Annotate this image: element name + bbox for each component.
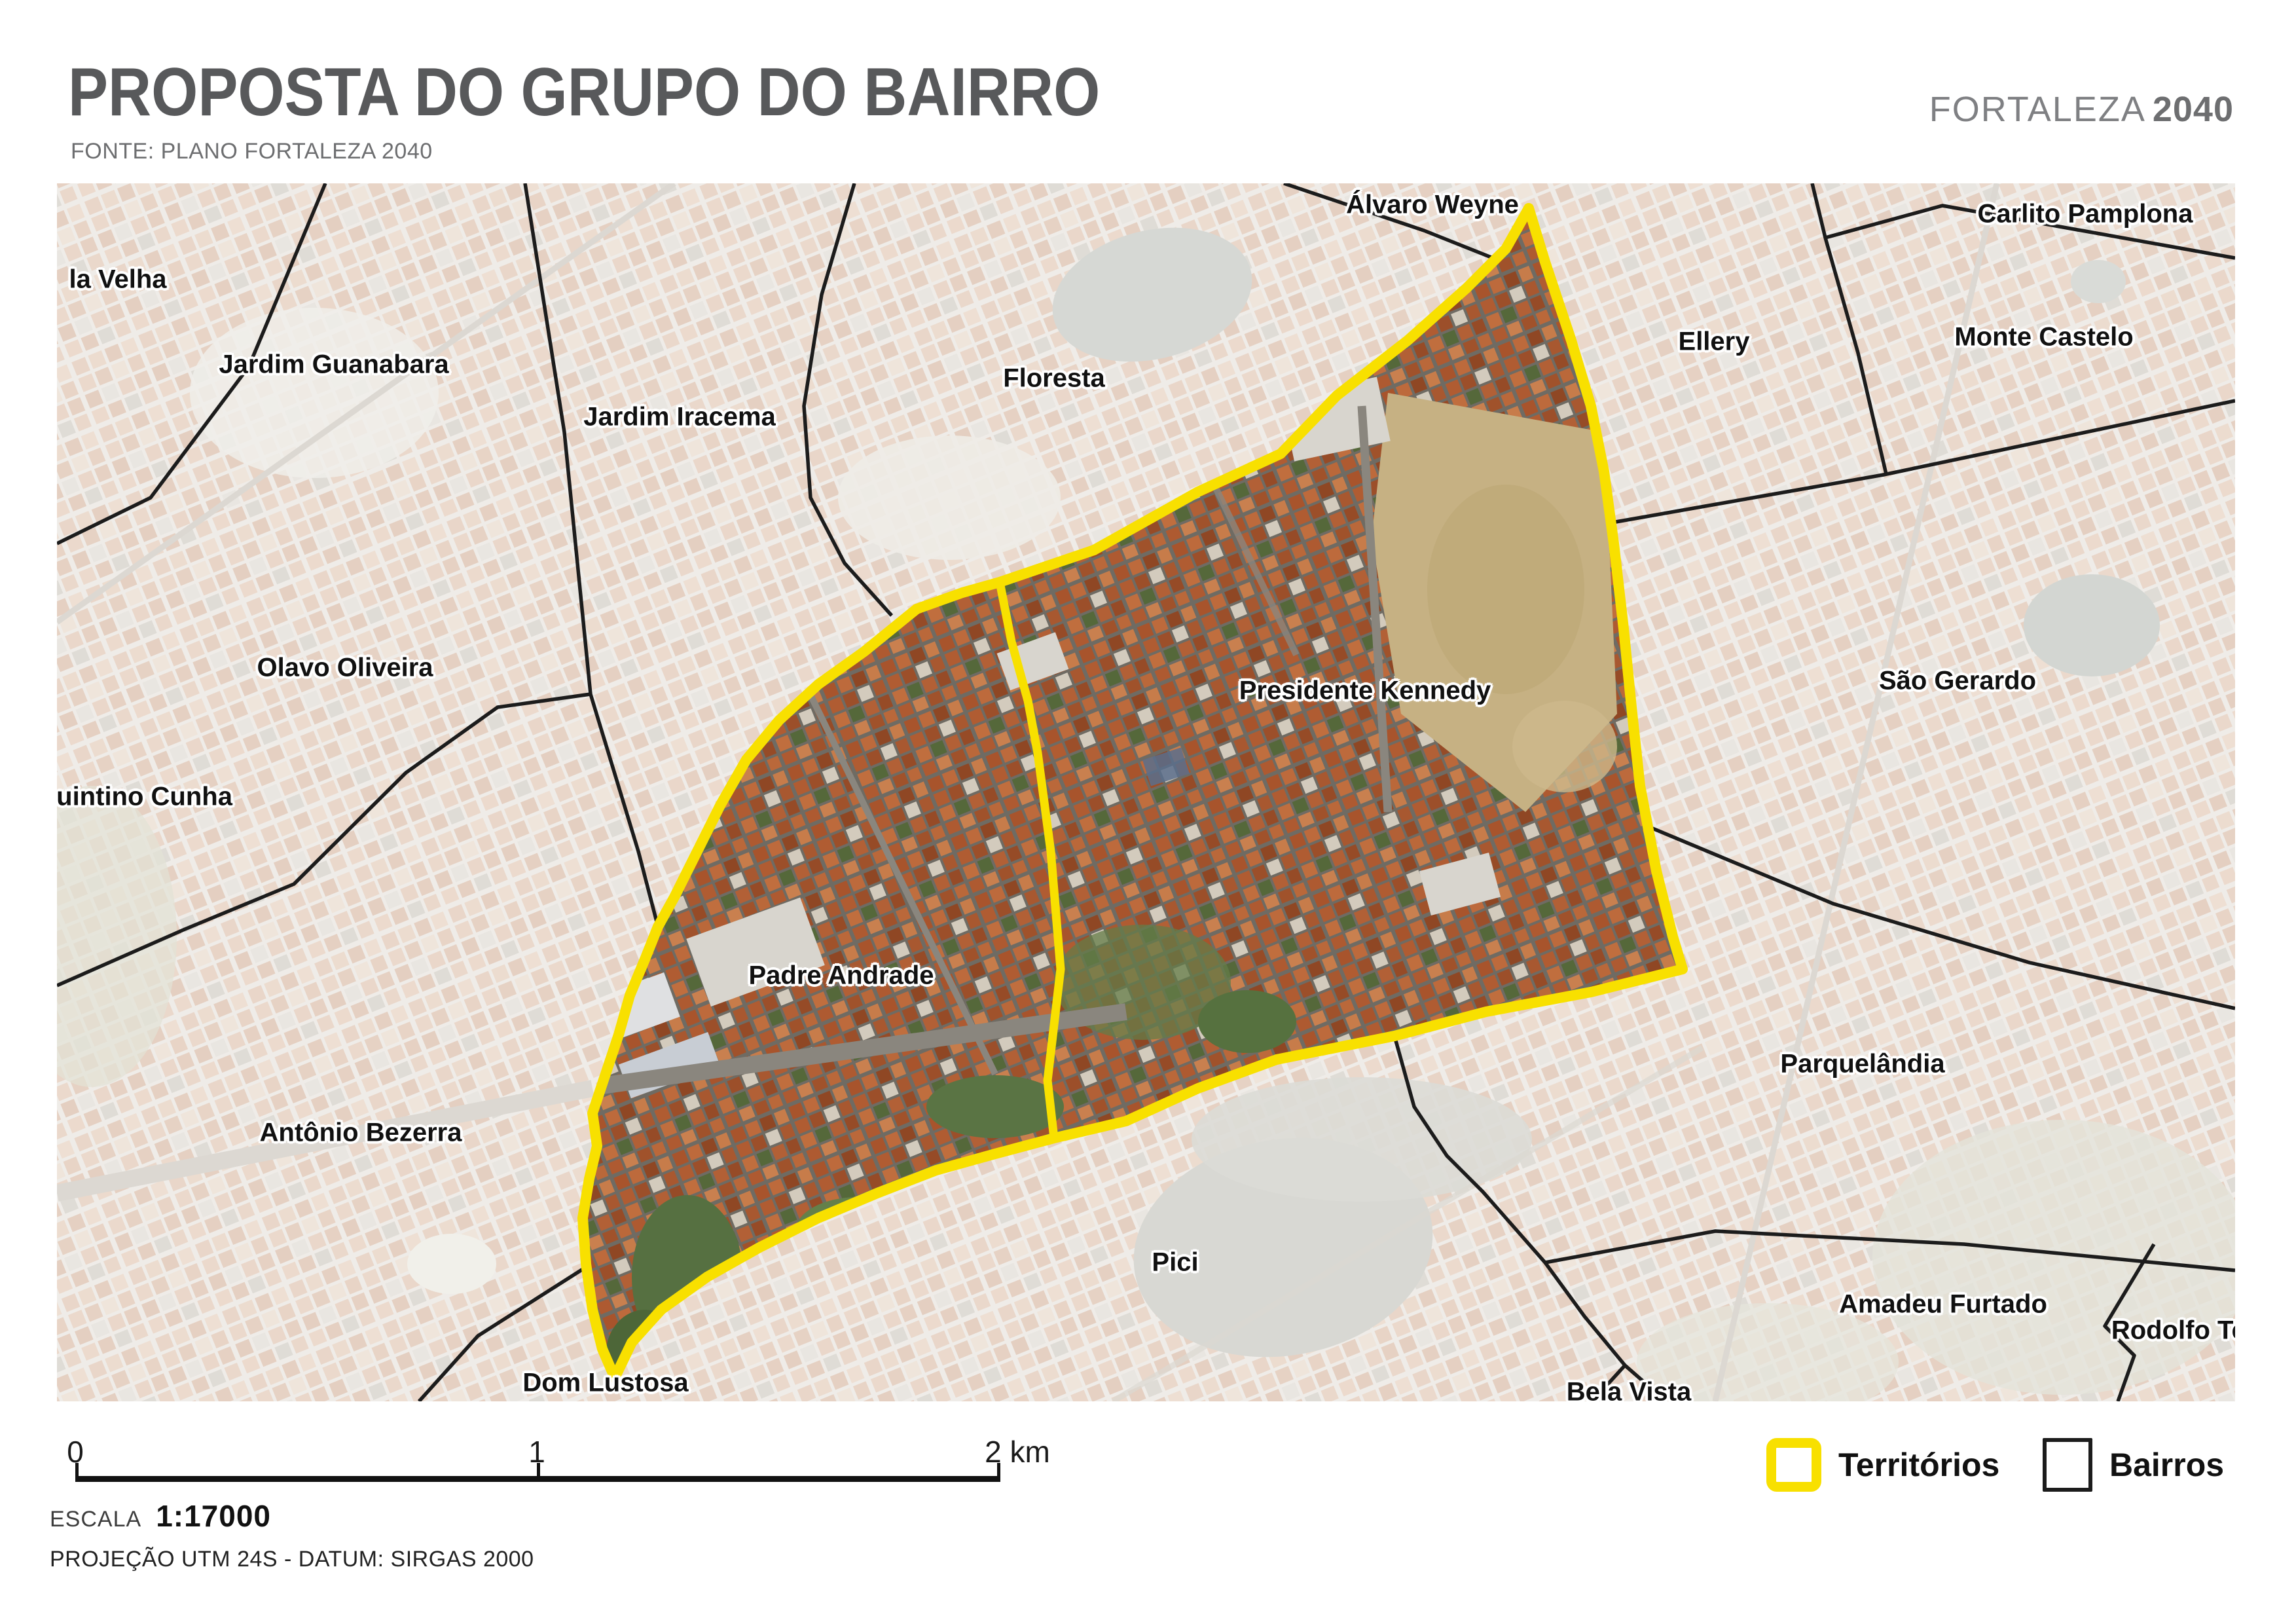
projection-note: PROJEÇÃO UTM 24S - DATUM: SIRGAS 2000 — [50, 1547, 534, 1572]
page-title: PROPOSTA DO GRUPO DO BAIRRO — [68, 55, 1100, 130]
scale-word: ESCALA — [50, 1507, 141, 1532]
map-drawing — [57, 183, 2235, 1401]
pond-monte-castelo — [2071, 260, 2126, 303]
scale-bar-tick — [537, 1463, 540, 1482]
legend-label-territorios: Territórios — [1838, 1446, 1999, 1484]
scale-bar-tick — [997, 1463, 1000, 1482]
logo-year: 2040 — [2153, 90, 2234, 129]
map-canvas: la VelhaJardim GuanabaraJardim IracemaFl… — [57, 183, 2235, 1401]
logo-name: FORTALEZA — [1929, 90, 2146, 129]
scale-tick-2-km: 2 km — [985, 1434, 1050, 1469]
lagoon-sao-gerardo — [2024, 574, 2160, 676]
legend-item-territorios: Territórios — [1766, 1438, 1999, 1492]
fortaleza-2040-logo: FORTALEZA2040 — [1929, 89, 2234, 130]
territory-swatch — [1766, 1438, 1821, 1492]
scale-value: 1:17000 — [156, 1498, 271, 1534]
scale-bar-tick — [75, 1463, 79, 1482]
bairro-swatch — [2043, 1438, 2092, 1492]
scale-text-row: ESCALA 1:17000 — [50, 1498, 271, 1534]
legend-label-bairros: Bairros — [2109, 1446, 2224, 1484]
page-source: FONTE: PLANO FORTALEZA 2040 — [71, 139, 433, 164]
legend-item-bairros: Bairros — [2043, 1438, 2224, 1492]
poster-page: PROPOSTA DO GRUPO DO BAIRRO FONTE: PLANO… — [0, 0, 2296, 1624]
